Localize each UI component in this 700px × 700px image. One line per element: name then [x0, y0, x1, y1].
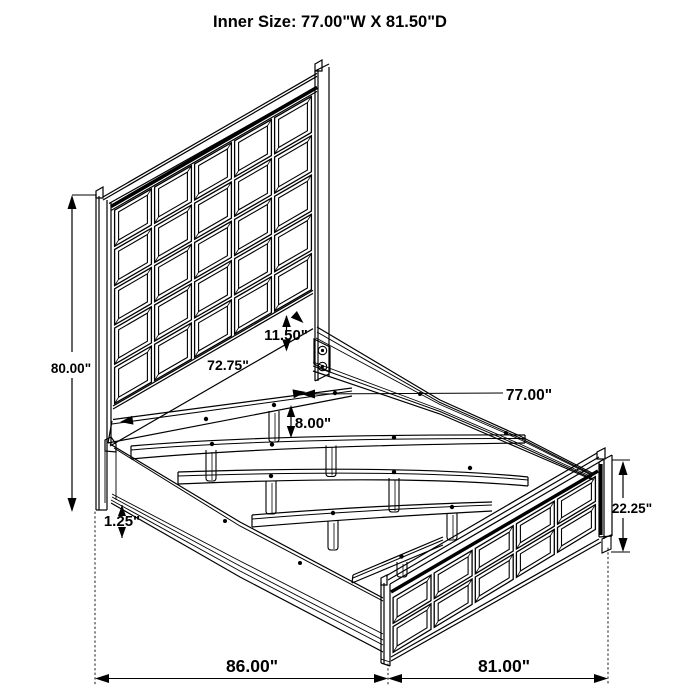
svg-text:77.00": 77.00" — [506, 387, 552, 404]
svg-text:86.00": 86.00" — [226, 656, 278, 676]
svg-text:22.25": 22.25" — [612, 501, 652, 516]
svg-text:8.00": 8.00" — [295, 415, 331, 432]
svg-text:1.25": 1.25" — [104, 513, 140, 530]
svg-text:Inner Size: 77.00"W X 81.50"D: Inner Size: 77.00"W X 81.50"D — [213, 13, 447, 31]
svg-text:80.00": 80.00" — [51, 361, 91, 376]
svg-text:81.00": 81.00" — [478, 656, 530, 676]
svg-text:72.75": 72.75" — [207, 357, 249, 373]
